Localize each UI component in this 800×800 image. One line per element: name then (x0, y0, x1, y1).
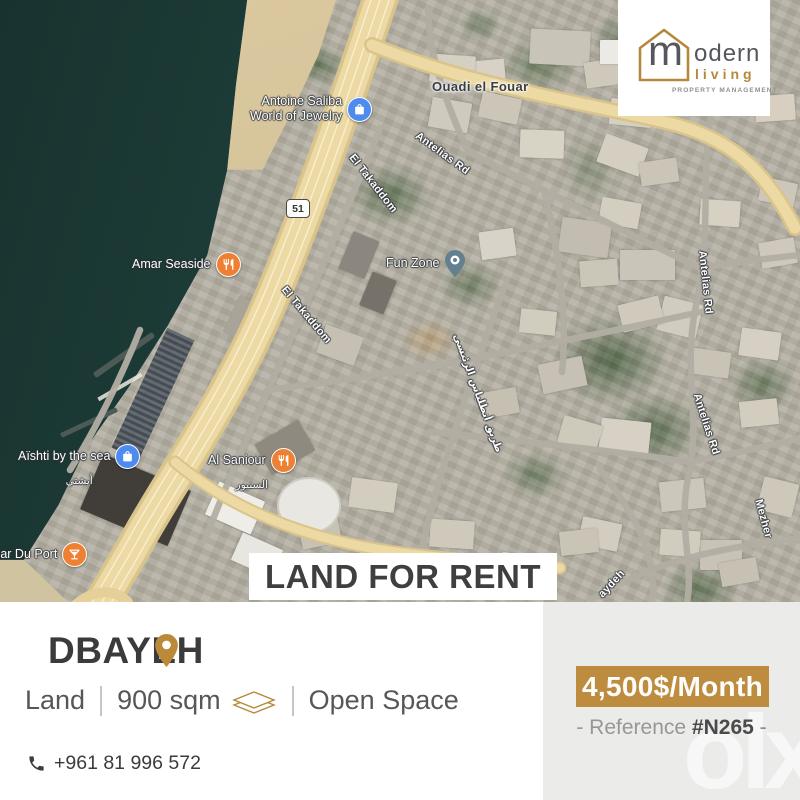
divider (292, 686, 294, 716)
poi-bar-du-port: Bar Du Port (0, 542, 87, 567)
phone-row: +961 81 996 572 (27, 752, 201, 775)
poi-fun-zone: Fun Zone (386, 250, 465, 277)
banner-text: LAND FOR RENT (265, 558, 541, 596)
olx-watermark: olx (683, 700, 800, 800)
location-title: DBAYEH (48, 630, 204, 672)
poi-aishti: Aïshti by the sea أيشتي (18, 444, 140, 489)
listing-type: Land (25, 685, 85, 716)
poi-aishti-label: Aïshti by the sea (18, 449, 110, 464)
poi-bar-label: Bar Du Port (0, 547, 57, 562)
route-shield-51: 51 (286, 199, 310, 218)
divider (100, 686, 102, 716)
listing-area: 900 sqm (117, 685, 221, 716)
restaurant-icon (216, 252, 241, 277)
poi-aishti-arabic: أيشتي (66, 474, 93, 489)
shopping-bag-icon (347, 97, 372, 122)
reference-line: - Reference #N265 - (543, 716, 800, 740)
poi-saniour-arabic: السنيور (236, 478, 268, 493)
land-area-icon (231, 691, 277, 715)
reference-prefix: - Reference (576, 716, 692, 739)
restaurant-icon (271, 448, 296, 473)
phone-icon (27, 754, 46, 773)
poi-funzone-label: Fun Zone (386, 256, 440, 271)
price-box: 4,500$/Month (576, 666, 769, 707)
poi-al-saniour: Al Saniour السنيور (208, 448, 296, 493)
logo-tagline: PROPERTY MANAGEMENT (672, 87, 778, 94)
poi-saniour-label: Al Saniour (208, 453, 266, 468)
poi-jewelry-label-line2: World of Jewelry (250, 109, 342, 124)
logo-word-living: living (695, 66, 756, 82)
poi-amar-label: Amar Seaside (132, 257, 211, 272)
land-for-rent-banner: LAND FOR RENT (249, 553, 557, 600)
price-amount: 4,500$/Month (582, 671, 763, 703)
shopping-bag-icon (115, 444, 140, 469)
location-pin-icon (155, 634, 178, 667)
price-panel: olx 4,500$/Month - Reference #N265 - (543, 602, 800, 800)
phone-number: +961 81 996 572 (54, 752, 201, 775)
reference-suffix: - (754, 716, 767, 739)
listing-details-row: Land 900 sqm Open Space (25, 685, 459, 716)
reference-number: #N265 (692, 716, 754, 739)
locality-label: Ouadi el Fouar (432, 79, 529, 94)
poi-jewelry-label-line1: Antoine Saliba (250, 94, 342, 109)
logo-letter-m: m (648, 30, 683, 72)
logo-word-modern: odern (694, 40, 760, 68)
poi-jewelry: Antoine Saliba World of Jewelry (250, 94, 372, 124)
cocktail-icon (62, 542, 87, 567)
listing-feature: Open Space (309, 685, 459, 716)
poi-amar-seaside: Amar Seaside (132, 252, 241, 277)
map-pin-icon (445, 250, 465, 277)
